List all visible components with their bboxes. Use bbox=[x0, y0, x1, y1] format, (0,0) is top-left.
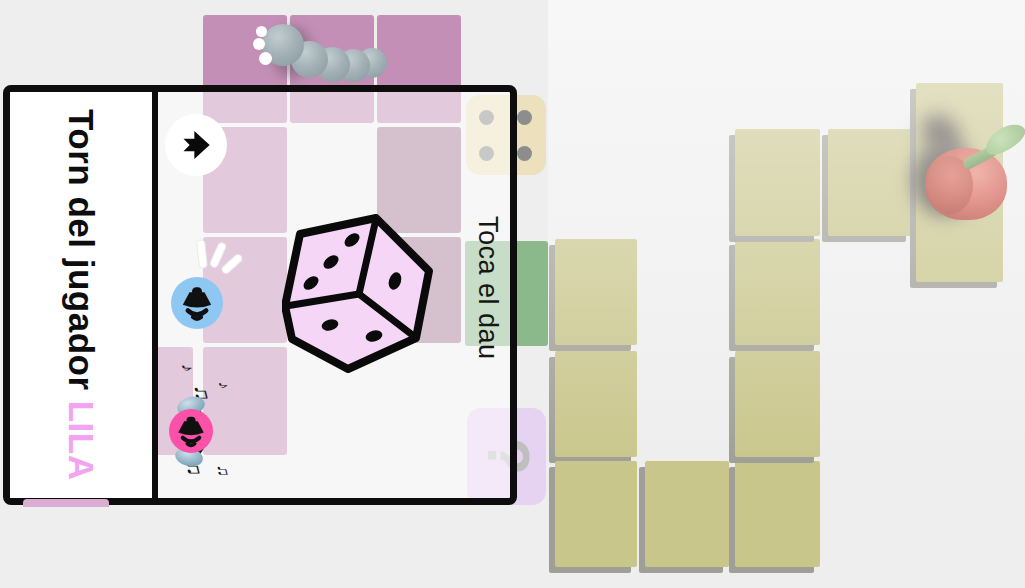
front-tile-sliver bbox=[23, 499, 109, 507]
horn-glyph bbox=[177, 283, 217, 323]
board-tile-khaki bbox=[555, 461, 637, 567]
music-note-icon: ♪ bbox=[216, 382, 233, 390]
board-tile-khaki bbox=[555, 351, 637, 457]
board-tile-khaki bbox=[735, 239, 820, 345]
die-face-pip bbox=[517, 110, 532, 125]
horn-glyph bbox=[173, 413, 209, 449]
speaker-icon[interactable] bbox=[171, 277, 223, 329]
player-turn-title-box: Torn del jugador LILA bbox=[10, 92, 158, 498]
arrow-glyph bbox=[176, 125, 216, 165]
player-turn-title: Torn del jugador LILA bbox=[61, 109, 101, 481]
board-tile-khaki bbox=[645, 461, 729, 567]
instruction-text: Toca el dau bbox=[472, 216, 503, 360]
board-tile-khaki bbox=[828, 129, 912, 236]
dice-3d[interactable] bbox=[282, 214, 436, 374]
music-note-icon: ♪ bbox=[177, 364, 197, 373]
turn-panel-content: Torn del jugador LILA bbox=[10, 92, 510, 498]
player-name: LILA bbox=[62, 401, 101, 481]
caterpillar-eye-dot bbox=[256, 26, 267, 37]
die-face-pip bbox=[517, 146, 532, 161]
game-stage: ? Torn del jugador LILA bbox=[0, 0, 1025, 588]
turn-panel: Torn del jugador LILA bbox=[3, 85, 517, 505]
caterpillar-eye-dot bbox=[259, 52, 272, 65]
board-tile-khaki bbox=[555, 239, 637, 345]
speaker-headphones-icon[interactable] bbox=[169, 409, 213, 453]
caterpillar-eye-dot bbox=[253, 38, 265, 50]
board-tile-khaki bbox=[735, 129, 820, 236]
title-prefix: Torn del jugador bbox=[62, 109, 101, 401]
board-tile-khaki bbox=[735, 461, 820, 567]
board-tile-khaki bbox=[735, 351, 820, 457]
arrow-right-icon[interactable] bbox=[165, 114, 227, 176]
